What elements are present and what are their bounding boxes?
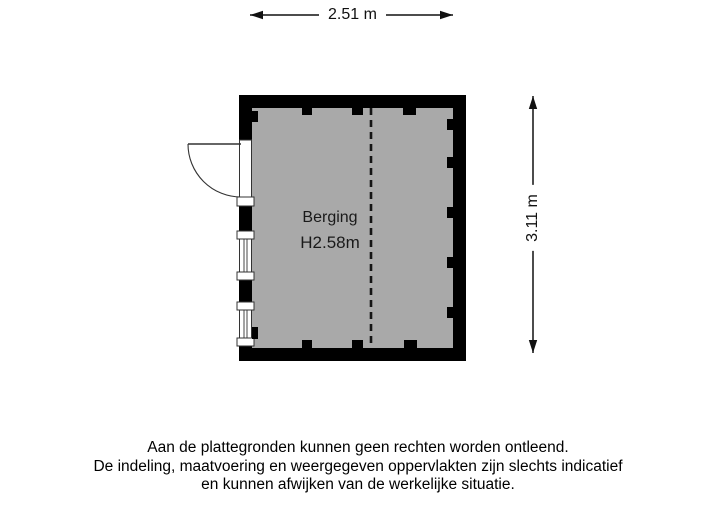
width-dimension: 2.51 m <box>252 5 453 25</box>
wall-left-segment-1 <box>239 95 252 140</box>
frame-block-1 <box>237 197 254 206</box>
height-dimension: 3.11 m <box>523 185 543 251</box>
width-dimension-label: 2.51 m <box>319 5 386 25</box>
disclaimer-text: Aan de plattegronden kunnen geen rechten… <box>0 439 716 495</box>
wall-stub <box>447 157 453 168</box>
room-label: Berging H2.58m <box>300 205 360 255</box>
floorplan-page: 2.51 m 3.11 m Berging H2.58m Aan de plat… <box>0 0 720 509</box>
frame-block-3 <box>237 272 254 280</box>
wall-stub <box>404 340 417 348</box>
door-swing-arc <box>188 144 241 197</box>
floorplan-drawing <box>0 0 720 509</box>
wall-stub <box>252 327 258 339</box>
window-2 <box>240 310 252 338</box>
wall-stub <box>403 107 416 115</box>
disclaimer-line-3: en kunnen afwijken van de werkelijke sit… <box>0 476 716 495</box>
wall-stub <box>252 111 258 122</box>
frame-block-2 <box>237 231 254 239</box>
wall-stub <box>302 340 312 348</box>
room-name: Berging <box>300 205 360 230</box>
wall-left-segment-2 <box>239 206 252 231</box>
height-dimension-label: 3.11 m <box>524 185 541 251</box>
wall-top <box>239 95 466 108</box>
wall-left-segment-4 <box>239 346 252 361</box>
wall-left-segment-3 <box>239 280 252 302</box>
wall-stub <box>447 257 453 268</box>
door-opening <box>240 140 252 197</box>
wall-stub <box>447 207 453 218</box>
window-1 <box>240 239 252 272</box>
disclaimer-line-2: De indeling, maatvoering en weergegeven … <box>0 458 716 477</box>
disclaimer-line-1: Aan de plattegronden kunnen geen rechten… <box>0 439 716 458</box>
wall-stub <box>352 107 363 115</box>
wall-stub <box>447 119 453 130</box>
wall-stub <box>447 307 453 318</box>
frame-block-4 <box>237 302 254 310</box>
wall-bottom <box>239 348 466 361</box>
frame-block-5 <box>237 338 254 346</box>
wall-stub <box>302 107 312 115</box>
room-ceiling-height: H2.58m <box>300 230 360 255</box>
wall-right <box>453 95 466 361</box>
wall-stub <box>352 340 363 348</box>
